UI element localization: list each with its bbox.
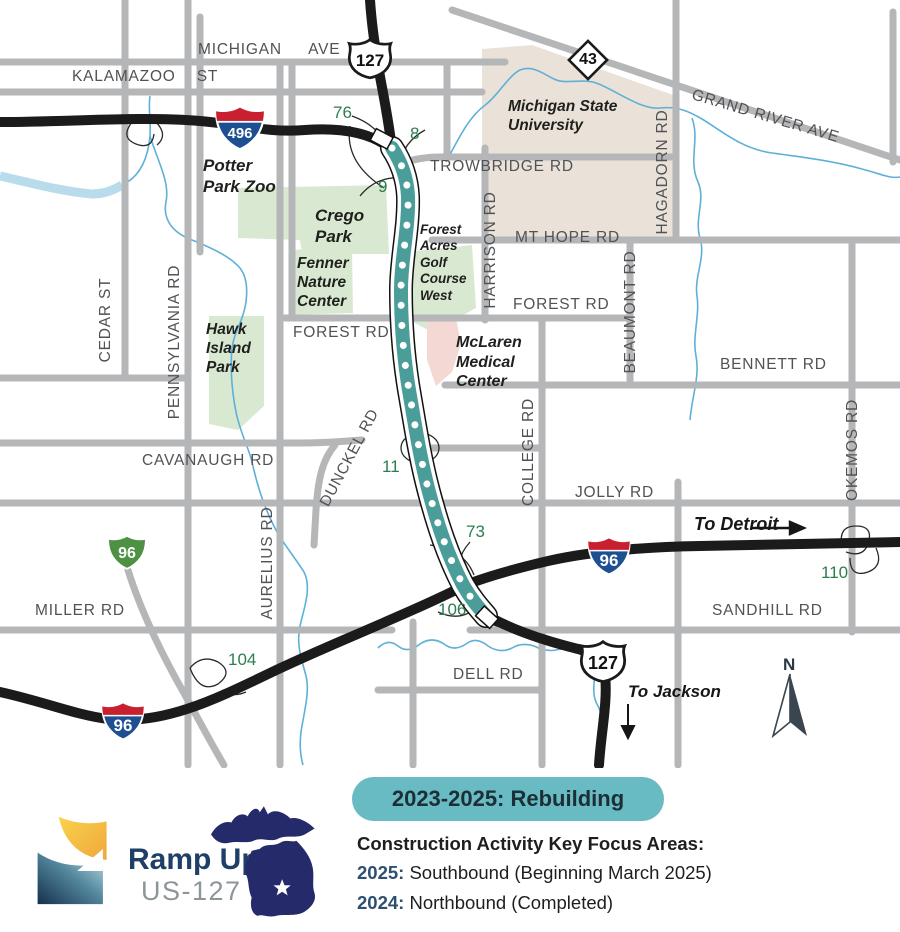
us-127-south-shield-icon: 127 xyxy=(578,640,628,685)
exit-number-11: 11 xyxy=(382,457,400,477)
road-label-michigan-ave: MICHIGAN AVE xyxy=(198,41,340,59)
legend-item-2025: 2025: Southbound (Beginning March 2025) xyxy=(357,862,712,884)
business-loop-96-shield-number: 96 xyxy=(106,532,148,572)
road-label-hagadorn-rd: HAGADORN RD xyxy=(654,109,672,234)
road-label-jolly-rd: JOLLY RD xyxy=(575,484,654,502)
road-label-sandhill-rd: SANDHILL RD xyxy=(712,602,823,620)
compass-needle-icon xyxy=(773,674,807,736)
road-label-forest-rd-west: FOREST RD xyxy=(293,324,389,342)
exit-number-8: 8 xyxy=(410,124,419,144)
south-arrow-icon xyxy=(622,704,634,738)
legend-item-2024-year: 2024: xyxy=(357,892,404,913)
road-label-college-rd: COLLEGE RD xyxy=(520,398,538,506)
m-43-shield-icon: 43 xyxy=(566,38,610,82)
legend-item-2024: 2024: Northbound (Completed) xyxy=(357,892,613,914)
road-label-trowbridge-rd: TROWBRIDGE RD xyxy=(430,158,574,176)
interstate-96-main-shield-number: 96 xyxy=(586,535,632,577)
road-label-cedar-st: CEDAR ST xyxy=(97,278,115,363)
road-label-aurelius-rd: AURELIUS RD xyxy=(259,506,277,619)
place-label-fenner-nature-center: Fenner Nature Center xyxy=(297,255,361,312)
interstate-496-shield-number: 496 xyxy=(212,105,268,151)
us-127-north-shield-icon: 127 xyxy=(346,38,394,81)
interstate-496-shield-icon: 496 xyxy=(212,105,268,151)
place-label-potter-park-zoo: Potter Park Zoo xyxy=(203,156,287,197)
direction-label-to-jackson: To Jackson xyxy=(628,682,721,702)
road-label-okemos-rd: OKEMOS RD xyxy=(844,399,862,501)
place-label-michigan-state-university: Michigan State University xyxy=(508,98,620,136)
road-label-forest-rd-east: FOREST RD xyxy=(513,296,609,314)
m-43-shield-number: 43 xyxy=(566,38,610,82)
exit-number-76: 76 xyxy=(333,103,352,123)
road-label-bennett-rd: BENNETT RD xyxy=(720,356,827,374)
interstate-96-sw-shield-number: 96 xyxy=(100,700,146,742)
compass-north-label: N xyxy=(783,655,795,675)
exit-number-73: 73 xyxy=(466,522,485,542)
exit-number-110: 110 xyxy=(821,563,848,583)
road-label-pennsylvania-rd: PENNSYLVANIA RD xyxy=(166,265,184,419)
interstate-96-sw-shield-icon: 96 xyxy=(100,700,146,742)
ramp-up-us127-map-page: MICHIGAN AVE KALAMAZOO ST GRAND RIVER AV… xyxy=(0,0,900,932)
michigan-state-silhouette-icon xyxy=(207,796,339,922)
road-label-cavanaugh-rd: CAVANAUGH RD xyxy=(142,452,274,470)
road-label-miller-rd: MILLER RD xyxy=(35,602,125,620)
exit-number-104: 104 xyxy=(228,650,256,670)
road-label-beaumont-rd: BEAUMONT RD xyxy=(622,250,640,373)
legend-item-2025-year: 2025: xyxy=(357,862,404,883)
place-label-hawk-island-park: Hawk Island Park xyxy=(206,321,264,378)
place-label-crego-park: Crego Park xyxy=(315,206,377,247)
road-label-dell-rd: DELL RD xyxy=(453,666,524,684)
legend-item-2024-text: Northbound (Completed) xyxy=(409,892,613,913)
exit-number-106: 106 xyxy=(438,600,466,620)
direction-label-to-detroit: To Detroit xyxy=(694,514,778,535)
legend-item-2025-text: Southbound (Beginning March 2025) xyxy=(409,862,711,883)
legend-heading: Construction Activity Key Focus Areas: xyxy=(357,833,704,855)
road-label-kalamazoo-st: KALAMAZOO ST xyxy=(72,68,218,86)
place-label-mclaren-medical-center: McLaren Medical Center xyxy=(456,333,528,392)
road-label-mt-hope-rd: MT HOPE RD xyxy=(515,229,620,247)
place-label-forest-acres-golf: Forest Acres Golf Course West xyxy=(420,222,474,304)
us-127-south-shield-number: 127 xyxy=(578,640,628,685)
us-127-north-shield-number: 127 xyxy=(346,38,394,81)
road-label-harrison-rd: HARRISON RD xyxy=(482,191,500,308)
ramp-up-logo-icon xyxy=(33,814,125,906)
exit-number-9: 9 xyxy=(378,177,387,197)
rebuilding-badge: 2023-2025: Rebuilding xyxy=(352,777,664,821)
business-loop-96-shield-icon: 96 xyxy=(106,532,148,572)
interstate-96-main-shield-icon: 96 xyxy=(586,535,632,577)
